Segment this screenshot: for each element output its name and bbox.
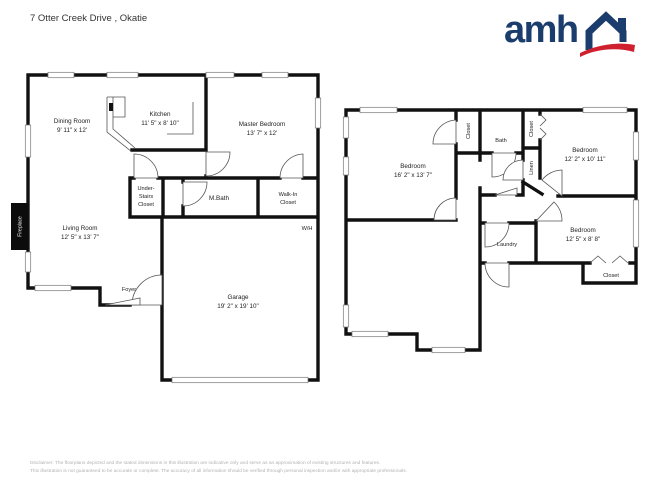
walkin-closet-door xyxy=(280,154,303,178)
amh-house-icon xyxy=(578,10,642,60)
floorplan-page: 7 Otter Creek Drive , Okatie amh Firepla… xyxy=(0,0,650,488)
page-title: 7 Otter Creek Drive , Okatie xyxy=(30,13,147,24)
bedroom3-label: Bedroom xyxy=(570,227,596,234)
first-floor-windows xyxy=(25,72,320,290)
disclaimer: Disclaimer: The floorplans depicted and … xyxy=(30,460,407,476)
understairs-door xyxy=(134,154,158,178)
closet-a-door xyxy=(433,120,456,144)
bedroom2-dims: 12' 2" x 10' 11" xyxy=(564,156,605,163)
second-floor-labels: Bedroom 16' 2" x 13' 7" Closet Bath Clos… xyxy=(394,121,619,279)
bedroom1-door xyxy=(434,198,456,220)
living-room-label: Living Room xyxy=(63,225,98,232)
master-bath-door xyxy=(183,182,207,206)
bedroom2-label: Bedroom xyxy=(572,147,598,154)
closet-c-bifold xyxy=(590,256,628,263)
kitchen-label: Kitchen xyxy=(149,111,171,118)
foyer-label: Foyer xyxy=(122,287,136,293)
understairs-label-2: Stairs xyxy=(139,194,154,200)
closet-c-label: Closet xyxy=(603,273,619,279)
laundry-label: Laundry xyxy=(497,242,517,248)
walkin-closet-label-2: Closet xyxy=(280,200,296,206)
master-bedroom-door xyxy=(206,152,230,176)
understairs-label-3: Closet xyxy=(138,202,154,208)
bath-label: Bath xyxy=(495,138,507,144)
first-floor-doors xyxy=(105,152,303,305)
kitchen-dims: 11' 5" x 8' 10" xyxy=(141,120,179,127)
amh-logo: amh xyxy=(504,10,642,60)
front-door-leaf xyxy=(105,298,140,305)
dining-room-dims: 9' 11" x 12' xyxy=(57,127,87,134)
bedroom3-door xyxy=(536,202,562,221)
bedroom1-dims: 16' 2" x 13' 7" xyxy=(394,172,432,179)
second-floor-plan: Bedroom 16' 2" x 13' 7" Closet Bath Clos… xyxy=(340,100,650,410)
closet-a-label: Closet xyxy=(466,123,472,139)
bedroom1-label: Bedroom xyxy=(400,163,426,170)
living-room-dims: 12' 5" x 13' 7" xyxy=(61,234,99,241)
linen-label: Linen xyxy=(529,161,535,175)
master-bedroom-dims: 13' 7" x 12' xyxy=(247,130,278,137)
disclaimer-line-2: This illustration is not guaranteed to b… xyxy=(30,468,407,476)
closet-b-label: Closet xyxy=(529,121,535,137)
first-floor-plan: Fireplace Di xyxy=(10,60,340,400)
garage-dims: 19' 2" x 19' 10" xyxy=(217,303,259,310)
amh-logo-text: amh xyxy=(504,10,578,50)
walkin-closet-label-1: Walk-In xyxy=(279,192,298,198)
disclaimer-line-1: Disclaimer: The floorplans depicted and … xyxy=(30,460,407,468)
water-heater-label: W/H xyxy=(302,226,313,232)
bedroom2-door xyxy=(542,170,562,196)
understairs-label-1: Under- xyxy=(137,186,154,192)
closet-b-bifold xyxy=(540,114,546,140)
dining-room-label: Dining Room xyxy=(54,118,90,125)
laundry-door-bottom xyxy=(485,263,509,287)
master-bedroom-label: Master Bedroom xyxy=(239,121,286,128)
garage-label: Garage xyxy=(227,294,249,301)
hall-door-leaf xyxy=(495,188,517,195)
second-floor-doors xyxy=(433,114,628,287)
master-bath-label: M.Bath xyxy=(209,195,229,202)
bedroom3-dims: 12' 5" x 8' 8" xyxy=(566,236,601,243)
garage-door xyxy=(172,377,308,382)
fireplace-label: Fireplace xyxy=(18,216,24,237)
